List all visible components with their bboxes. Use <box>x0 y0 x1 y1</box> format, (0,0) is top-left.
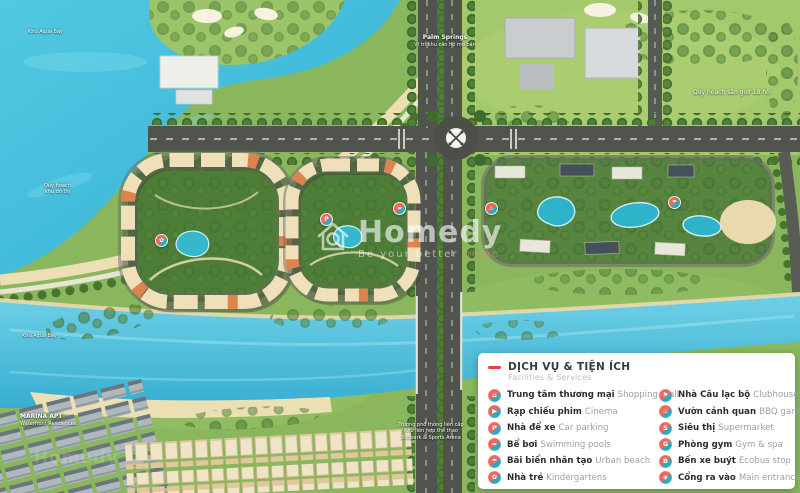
ecobus-stop-icon: B <box>659 455 672 468</box>
homedy-watermark: Homedy Be your better home <box>314 218 502 260</box>
school-sports-label: Trường phổ thông liên cấp Khu liên hợp t… <box>386 422 476 441</box>
legend-item-gym-spa: G Phòng gymGym & spa <box>659 437 800 454</box>
legend-header: DỊCH VỤ & TIỆN ÍCH Facilities & Services <box>488 361 787 382</box>
cinema-icon: ▶ <box>488 405 501 418</box>
gym-spa-icon: G <box>659 438 672 451</box>
homedy-watermark-faint: Homedy <box>34 448 118 468</box>
supermarket-icon: S <box>659 422 672 435</box>
watermark-brand: Homedy <box>358 218 502 248</box>
boulevard-top <box>405 0 475 128</box>
car-parking-icon: P <box>488 422 501 435</box>
sand-garden <box>720 200 776 244</box>
lake-label-aqua-bay-top: Khu Aqua Bay <box>28 29 63 35</box>
legend-item-main-entrance: ◈ Cổng ra vàoMain entrance <box>659 470 800 487</box>
golf-plan-label: Quy hoạch sân golf 18 hố <box>693 89 770 97</box>
legend-item-bbq-garden: ♨ Vườn cảnh quanBBQ garden <box>659 404 800 421</box>
secondary-road-topright <box>638 0 672 128</box>
lakeside-building <box>160 56 218 88</box>
legend-title: DỊCH VỤ & TIỆN ÍCH <box>508 361 630 373</box>
legend-card: DỊCH VỤ & TIỆN ÍCH Facilities & Services… <box>478 353 795 489</box>
legend-item-urban-beach: ☂ Bãi biển nhân tạoUrban beach <box>488 453 655 470</box>
roundabout <box>426 110 486 166</box>
legend-item-shopping-mall: ⌂ Trung tâm thương mạiShopping mall <box>488 387 655 404</box>
legend-accent-dash <box>488 366 501 369</box>
kindergarten-icon: ✿ <box>488 471 501 484</box>
urban-plan-label: Quy hoạch khu đô thị <box>44 183 71 196</box>
marina-label: MARINA APT Waterfront Residences <box>20 413 76 427</box>
amenity-marker: ♨ <box>485 202 498 215</box>
amenity-marker: ≈ <box>393 202 406 215</box>
urban-beach-icon: ☂ <box>488 455 501 468</box>
resort-cluster-c <box>484 158 776 264</box>
legend-item-car-parking: P Nhà để xeCar parking <box>488 420 655 437</box>
legend-item-supermarket: S Siêu thịSupermarket <box>659 420 800 437</box>
amenity-marker: ✿ <box>155 234 168 247</box>
rooftop-building <box>505 18 575 58</box>
courtyard-pond <box>176 231 209 257</box>
legend-item-ecobus-stop: B Bến xe buýtEcobus stop <box>659 453 800 470</box>
pool <box>538 197 575 226</box>
masterplan-map: Khu Aqua Bay Khu Aqua Bay Quy hoạch sân … <box>0 0 800 493</box>
main-entrance-icon: ◈ <box>659 471 672 484</box>
bbq-garden-icon: ♨ <box>659 405 672 418</box>
homedy-logo-icon <box>314 218 352 256</box>
residential-cluster-a <box>128 160 288 305</box>
legend-item-swimming-pools: ≈ Bể bơiSwimming pools <box>488 437 655 454</box>
legend-subtitle: Facilities & Services <box>508 373 630 382</box>
watermark-tagline: Be your better home <box>358 249 502 260</box>
legend-item-kindergartens: ✿ Nhà trẻKindergartens <box>488 470 655 487</box>
lake-label-aqua-bay-bottom: Khu Aqua Bay <box>22 333 57 339</box>
shopping-mall-icon: ⌂ <box>488 389 501 402</box>
legend-item-cinema: ▶ Rạp chiếu phimCinema <box>488 404 655 421</box>
palm-springs-label: Palm Springs Vị trí khu căn hộ mở bán <box>402 34 488 48</box>
clubhouse-icon: ⚑ <box>659 389 672 402</box>
legend-item-clubhouse: ⚑ Nhà Câu lạc bộClubhouse <box>659 387 800 404</box>
swimming-pool-icon: ≈ <box>488 438 501 451</box>
amenity-marker: ☂ <box>668 196 681 209</box>
sand-bunker <box>192 9 222 23</box>
legend-items: ⌂ Trung tâm thương mạiShopping mall ▶ Rạ… <box>488 387 787 486</box>
